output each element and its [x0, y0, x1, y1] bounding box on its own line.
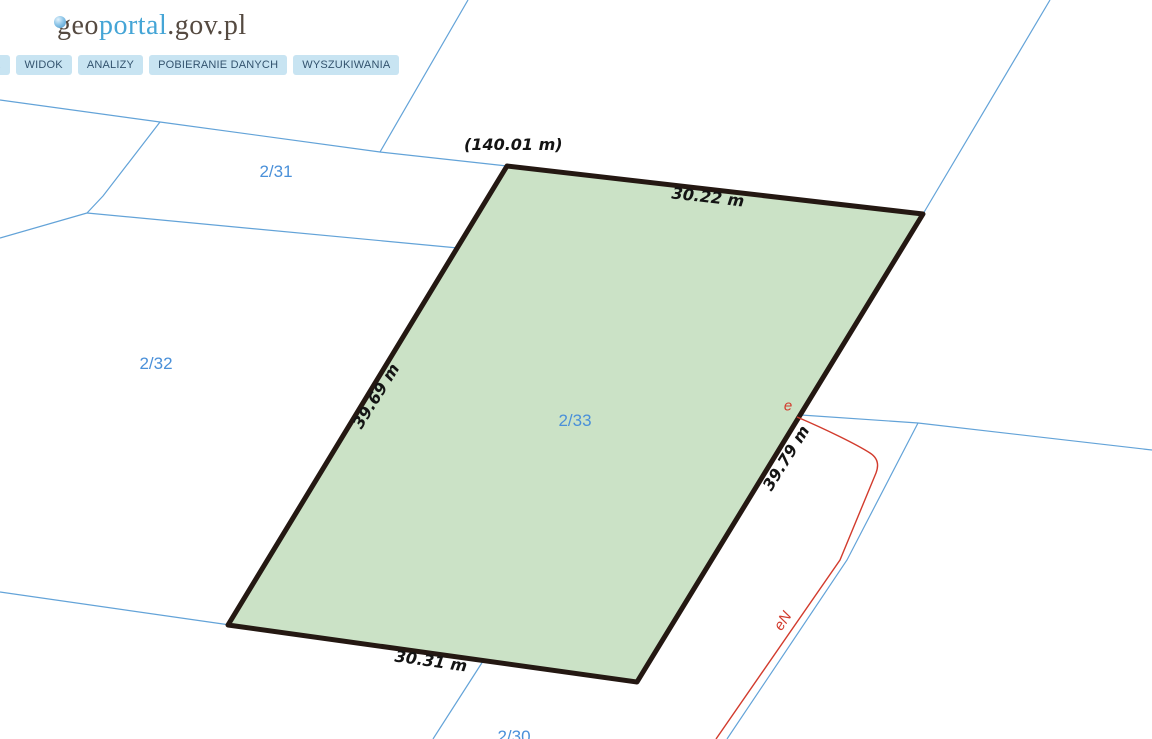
- parcel-label-2-32: 2/32: [139, 354, 172, 374]
- boundary-line: [0, 100, 507, 166]
- boundary-line: [380, 0, 468, 152]
- boundary-line: [87, 122, 160, 213]
- boundary-line: [0, 592, 230, 625]
- parcel-label-2-30: 2/30: [497, 727, 530, 739]
- parcel-label-2-33: 2/33: [558, 411, 591, 431]
- boundary-line: [801, 415, 1152, 450]
- boundary-line: [923, 0, 1050, 214]
- dimension-total-label: (140.01 m): [464, 135, 563, 154]
- red-point-label: e: [784, 398, 792, 415]
- boundary-line: [87, 213, 458, 248]
- parcel-label-2-31: 2/31: [259, 162, 292, 182]
- boundary-line: [0, 213, 87, 238]
- cadastral-map-canvas[interactable]: [0, 0, 1152, 739]
- geoportal-map-view: geoportal.gov.pl K WIDOK ANALIZY POBIERA…: [0, 0, 1152, 739]
